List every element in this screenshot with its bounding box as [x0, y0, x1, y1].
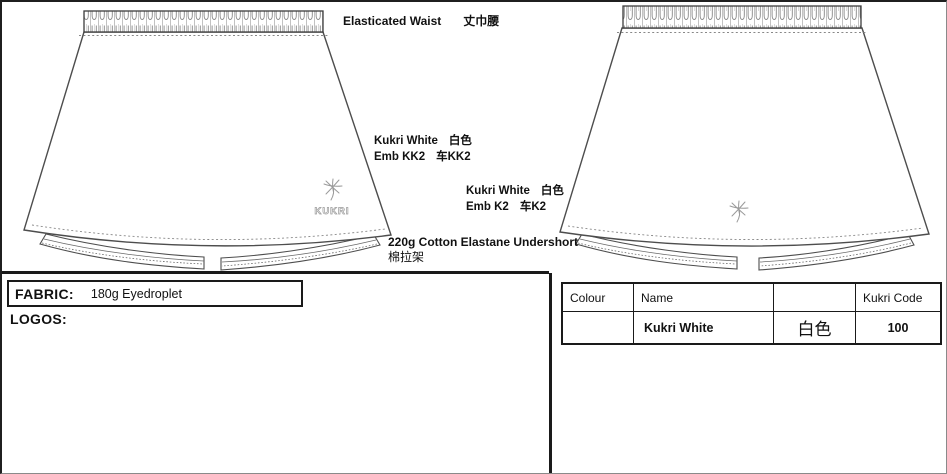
colour-table-header-name: Name [634, 284, 774, 312]
section-divider-vertical [549, 273, 552, 474]
annotation-emb-back: Kukri White 白色 Emb K2 车K2 [466, 183, 564, 215]
annotation-text: Kukri White [374, 133, 438, 149]
elasticated-waistband [84, 11, 323, 32]
elasticated-waistband [623, 6, 861, 28]
fabric-value: 180g Eyedroplet [91, 287, 182, 301]
annotation-elasticated-waist: Elasticated Waist 丈巾腰 [343, 12, 499, 29]
colour-table-header-name-zh [774, 284, 856, 312]
annotation-text-zh: 白色 [541, 183, 564, 199]
annotation-text-zh: 车K2 [520, 199, 546, 215]
technical-drawing: KUKRI [2, 2, 947, 272]
colour-name-zh-cell: 白色 [774, 312, 856, 343]
annotation-text: 220g Cotton Elastane Undershort [388, 235, 578, 250]
annotation-undershort: 220g Cotton Elastane Undershort 棉拉架 [388, 235, 578, 265]
section-divider-horizontal [2, 271, 549, 274]
colour-swatch-cell [563, 312, 634, 343]
front-view-drawing: KUKRI [24, 11, 391, 270]
fabric-box: FABRIC: 180g Eyedroplet [7, 280, 303, 307]
back-view-drawing [560, 6, 929, 270]
colour-table-header-code: Kukri Code [856, 284, 940, 312]
fabric-label: FABRIC: [15, 286, 74, 302]
spec-sheet-page: KUKRI Elasticated Waist 丈巾腰 [0, 0, 947, 474]
annotation-text-zh: 棉拉架 [388, 250, 578, 265]
kukri-logo-text: KUKRI [314, 206, 349, 217]
colour-name-cell: Kukri White [634, 312, 774, 343]
colour-table: Colour Name Kukri Code Kukri White 白色 10… [561, 282, 942, 345]
annotation-text: Emb K2 [466, 199, 509, 215]
annotation-text: Kukri White [466, 183, 530, 199]
annotation-text-zh: 车KK2 [436, 149, 471, 165]
annotation-emb-front: Kukri White 白色 Emb KK2 车KK2 [374, 133, 472, 165]
annotation-text-zh: 丈巾腰 [463, 12, 499, 29]
annotation-text-zh: 白色 [449, 133, 472, 149]
colour-table-header-colour: Colour [563, 284, 634, 312]
logos-label: LOGOS: [10, 311, 67, 327]
skirt-body [560, 28, 929, 246]
kukri-code-cell: 100 [856, 312, 940, 343]
annotation-text: Elasticated Waist [343, 14, 441, 28]
annotation-text: Emb KK2 [374, 149, 425, 165]
